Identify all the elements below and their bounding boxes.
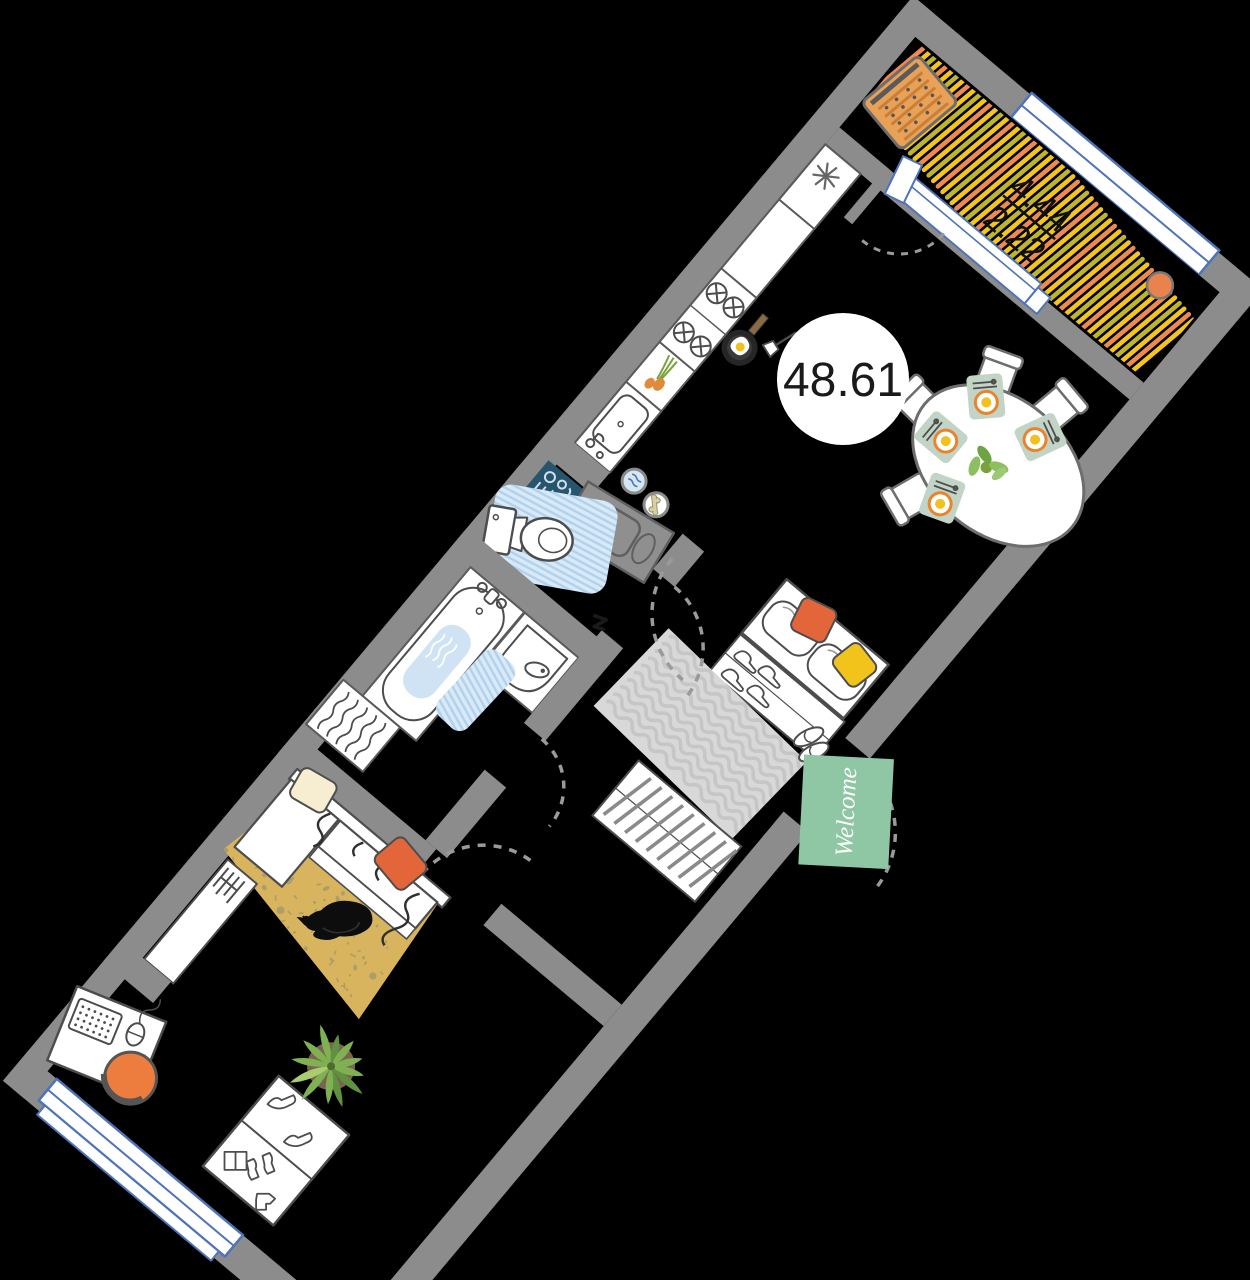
svg-text:48.61: 48.61 bbox=[783, 354, 903, 407]
svg-text:Welcome: Welcome bbox=[831, 767, 863, 858]
